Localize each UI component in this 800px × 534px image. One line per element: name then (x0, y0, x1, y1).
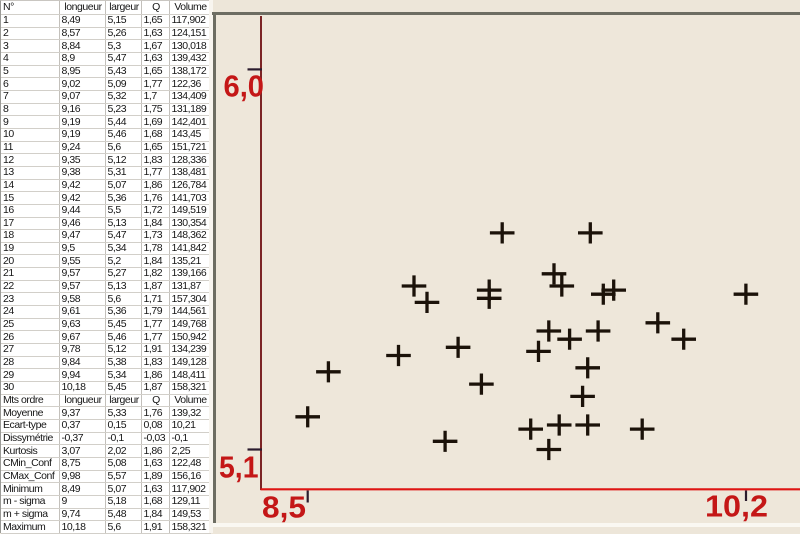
svg-text:6,0: 6,0 (224, 69, 265, 104)
svg-text:10,2: 10,2 (705, 489, 768, 524)
svg-text:8,5: 8,5 (262, 490, 306, 525)
svg-text:5,1: 5,1 (219, 450, 259, 485)
